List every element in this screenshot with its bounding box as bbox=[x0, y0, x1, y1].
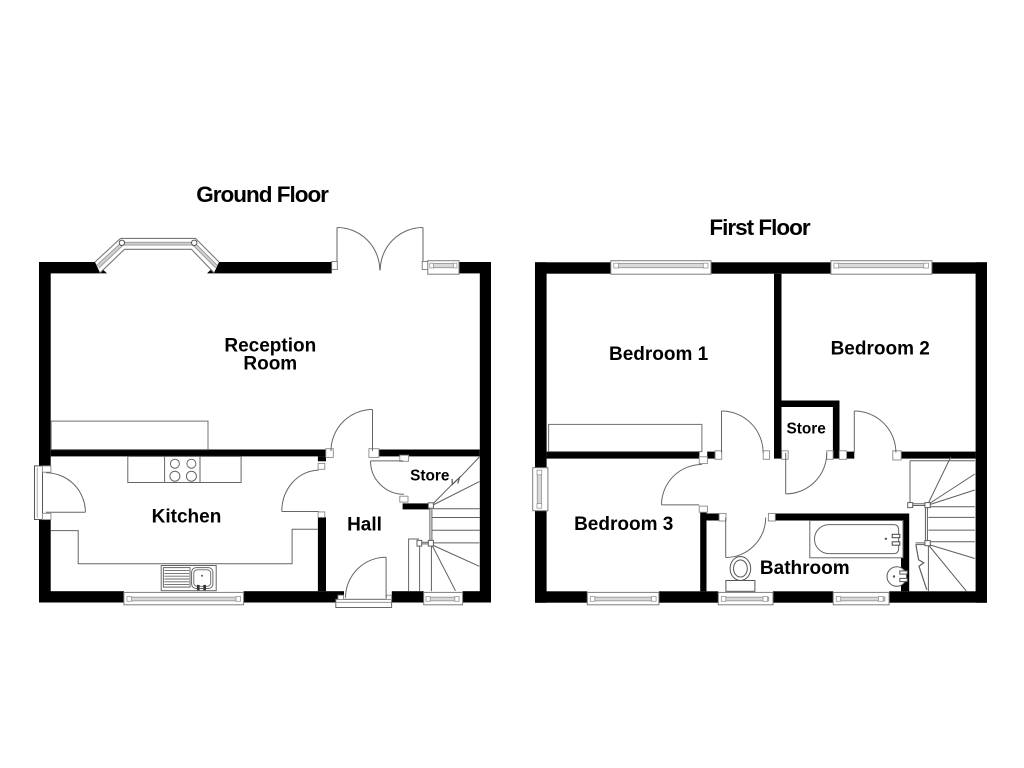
svg-text:Ground Floor: Ground Floor bbox=[196, 182, 329, 207]
svg-text:Store: Store bbox=[410, 467, 450, 484]
svg-text:Bedroom 2: Bedroom 2 bbox=[831, 339, 930, 360]
svg-text:Kitchen: Kitchen bbox=[152, 506, 222, 527]
svg-text:Room: Room bbox=[243, 354, 297, 375]
svg-text:Store: Store bbox=[787, 421, 827, 438]
svg-text:Hall: Hall bbox=[347, 514, 382, 535]
svg-text:Bedroom 3: Bedroom 3 bbox=[574, 514, 673, 535]
svg-text:Bedroom 1: Bedroom 1 bbox=[609, 344, 709, 365]
svg-text:First Floor: First Floor bbox=[709, 215, 810, 240]
svg-text:Bathroom: Bathroom bbox=[760, 558, 850, 579]
